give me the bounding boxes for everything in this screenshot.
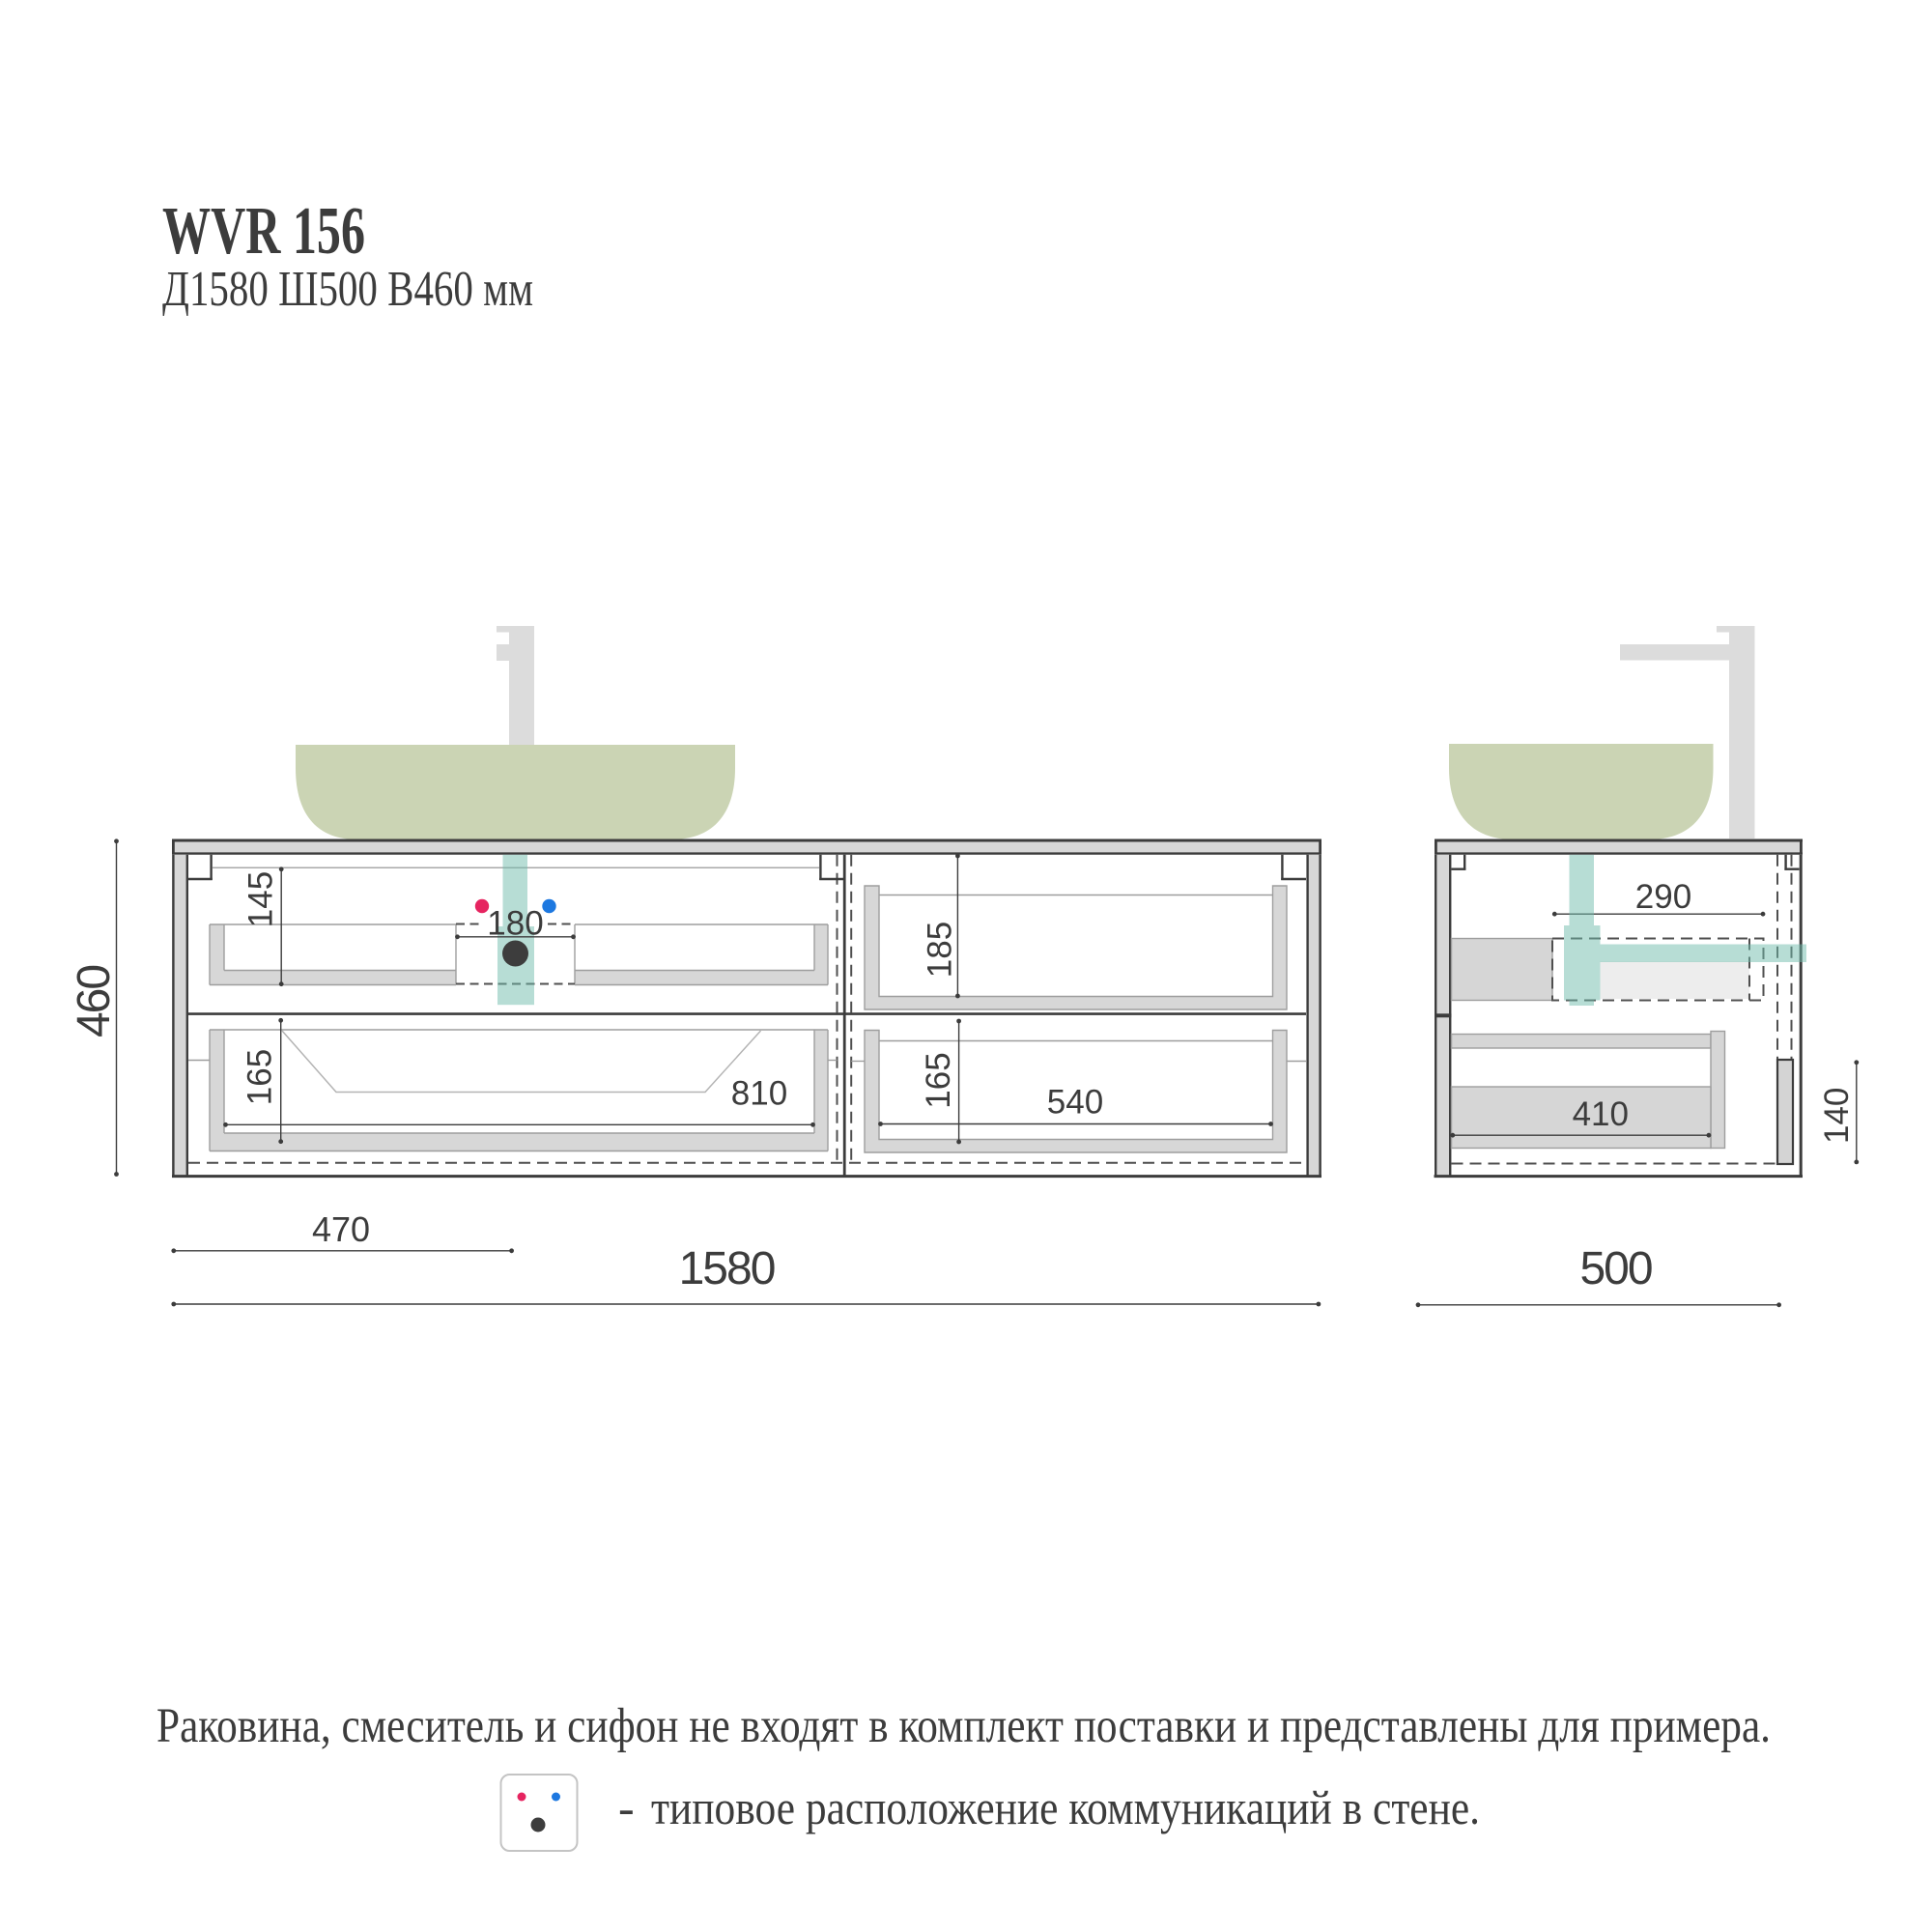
svg-text:Д1580 Ш500 В460 мм: Д1580 Ш500 В460 мм (162, 262, 533, 317)
svg-text:Раковина, смеситель и сифон не: Раковина, смеситель и сифон не входят в … (156, 1699, 1771, 1753)
svg-text:1580: 1580 (679, 1243, 775, 1294)
svg-text:460: 460 (69, 966, 120, 1037)
svg-text:540: 540 (1047, 1084, 1103, 1122)
svg-text:185: 185 (922, 922, 959, 978)
svg-text:290: 290 (1635, 878, 1691, 916)
svg-text:165: 165 (241, 1049, 279, 1105)
svg-text:165: 165 (920, 1052, 957, 1108)
svg-text:810: 810 (731, 1075, 787, 1113)
svg-text:410: 410 (1573, 1095, 1629, 1133)
svg-text:470: 470 (312, 1209, 370, 1249)
svg-text:-: - (618, 1780, 635, 1834)
svg-text:типовое расположение коммуника: типовое расположение коммуникаций в стен… (651, 1780, 1480, 1834)
svg-text:500: 500 (1579, 1243, 1651, 1294)
svg-text:180: 180 (487, 905, 543, 943)
svg-text:WVR 156: WVR 156 (162, 194, 365, 269)
svg-text:145: 145 (242, 871, 280, 927)
svg-text:140: 140 (1818, 1088, 1856, 1144)
